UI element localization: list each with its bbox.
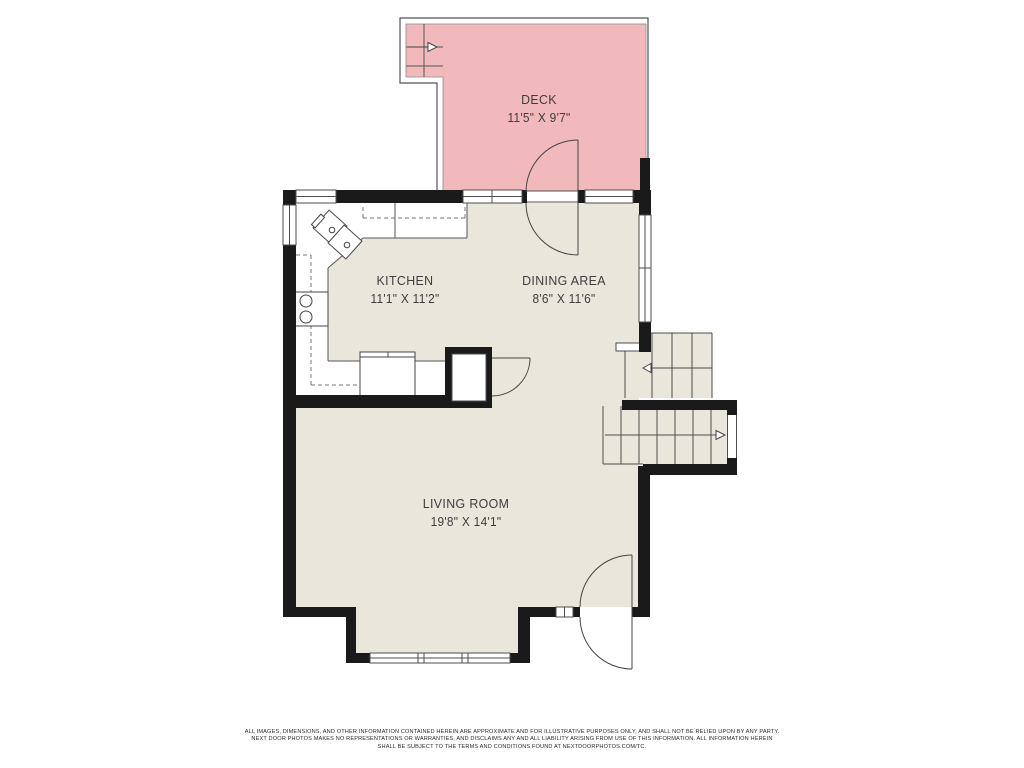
floorplan-canvas: DECK 11'5" X 9'7" KITCHEN 11'1" X 11'2" … [0,0,1024,768]
dining-area-name: DINING AREA [522,273,606,288]
dining-area-dims: 8'6" X 11'6" [522,292,606,306]
stairwell-side-opening [727,415,737,458]
kitchen-dims: 11'1" X 11'2" [370,292,439,306]
window-living-bay [370,653,510,663]
deck-label: DECK 11'5" X 9'7" [507,92,570,125]
window-kitchen-left [283,205,296,245]
window-dining-top-right [585,190,633,203]
deck-door-opening [527,191,578,203]
refrigerator [360,352,415,400]
stair-railing [616,343,642,351]
living-room-label: LIVING ROOM 19'8" X 14'1" [423,496,510,529]
disclaimer-line-1: ALL IMAGES, DIMENSIONS, AND OTHER INFORM… [0,729,1024,736]
disclaimer-line-3: SHALL BE SUBJECT TO THE TERMS AND CONDIT… [0,744,1024,751]
deck-dims: 11'5" X 9'7" [507,111,570,125]
disclaimer-line-2: NEXT DOOR PHOTOS MAKES NO REPRESENTATION… [0,736,1024,743]
window-kitchen-top [296,190,336,203]
disclaimer-text: ALL IMAGES, DIMENSIONS, AND OTHER INFORM… [0,729,1024,751]
living-room-name: LIVING ROOM [423,496,510,511]
stove [294,292,328,326]
interior-floor [296,203,727,653]
window-dining-right [639,215,651,322]
window-dining-top-left [463,190,522,203]
kitchen-label: KITCHEN 11'1" X 11'2" [370,273,439,306]
deck-name: DECK [507,92,570,107]
deck-wall-stub [640,158,650,192]
window-living-bottom-small [556,607,573,617]
dining-area-label: DINING AREA 8'6" X 11'6" [522,273,606,306]
kitchen-name: KITCHEN [370,273,439,288]
living-room-dims: 19'8" X 14'1" [423,515,510,529]
